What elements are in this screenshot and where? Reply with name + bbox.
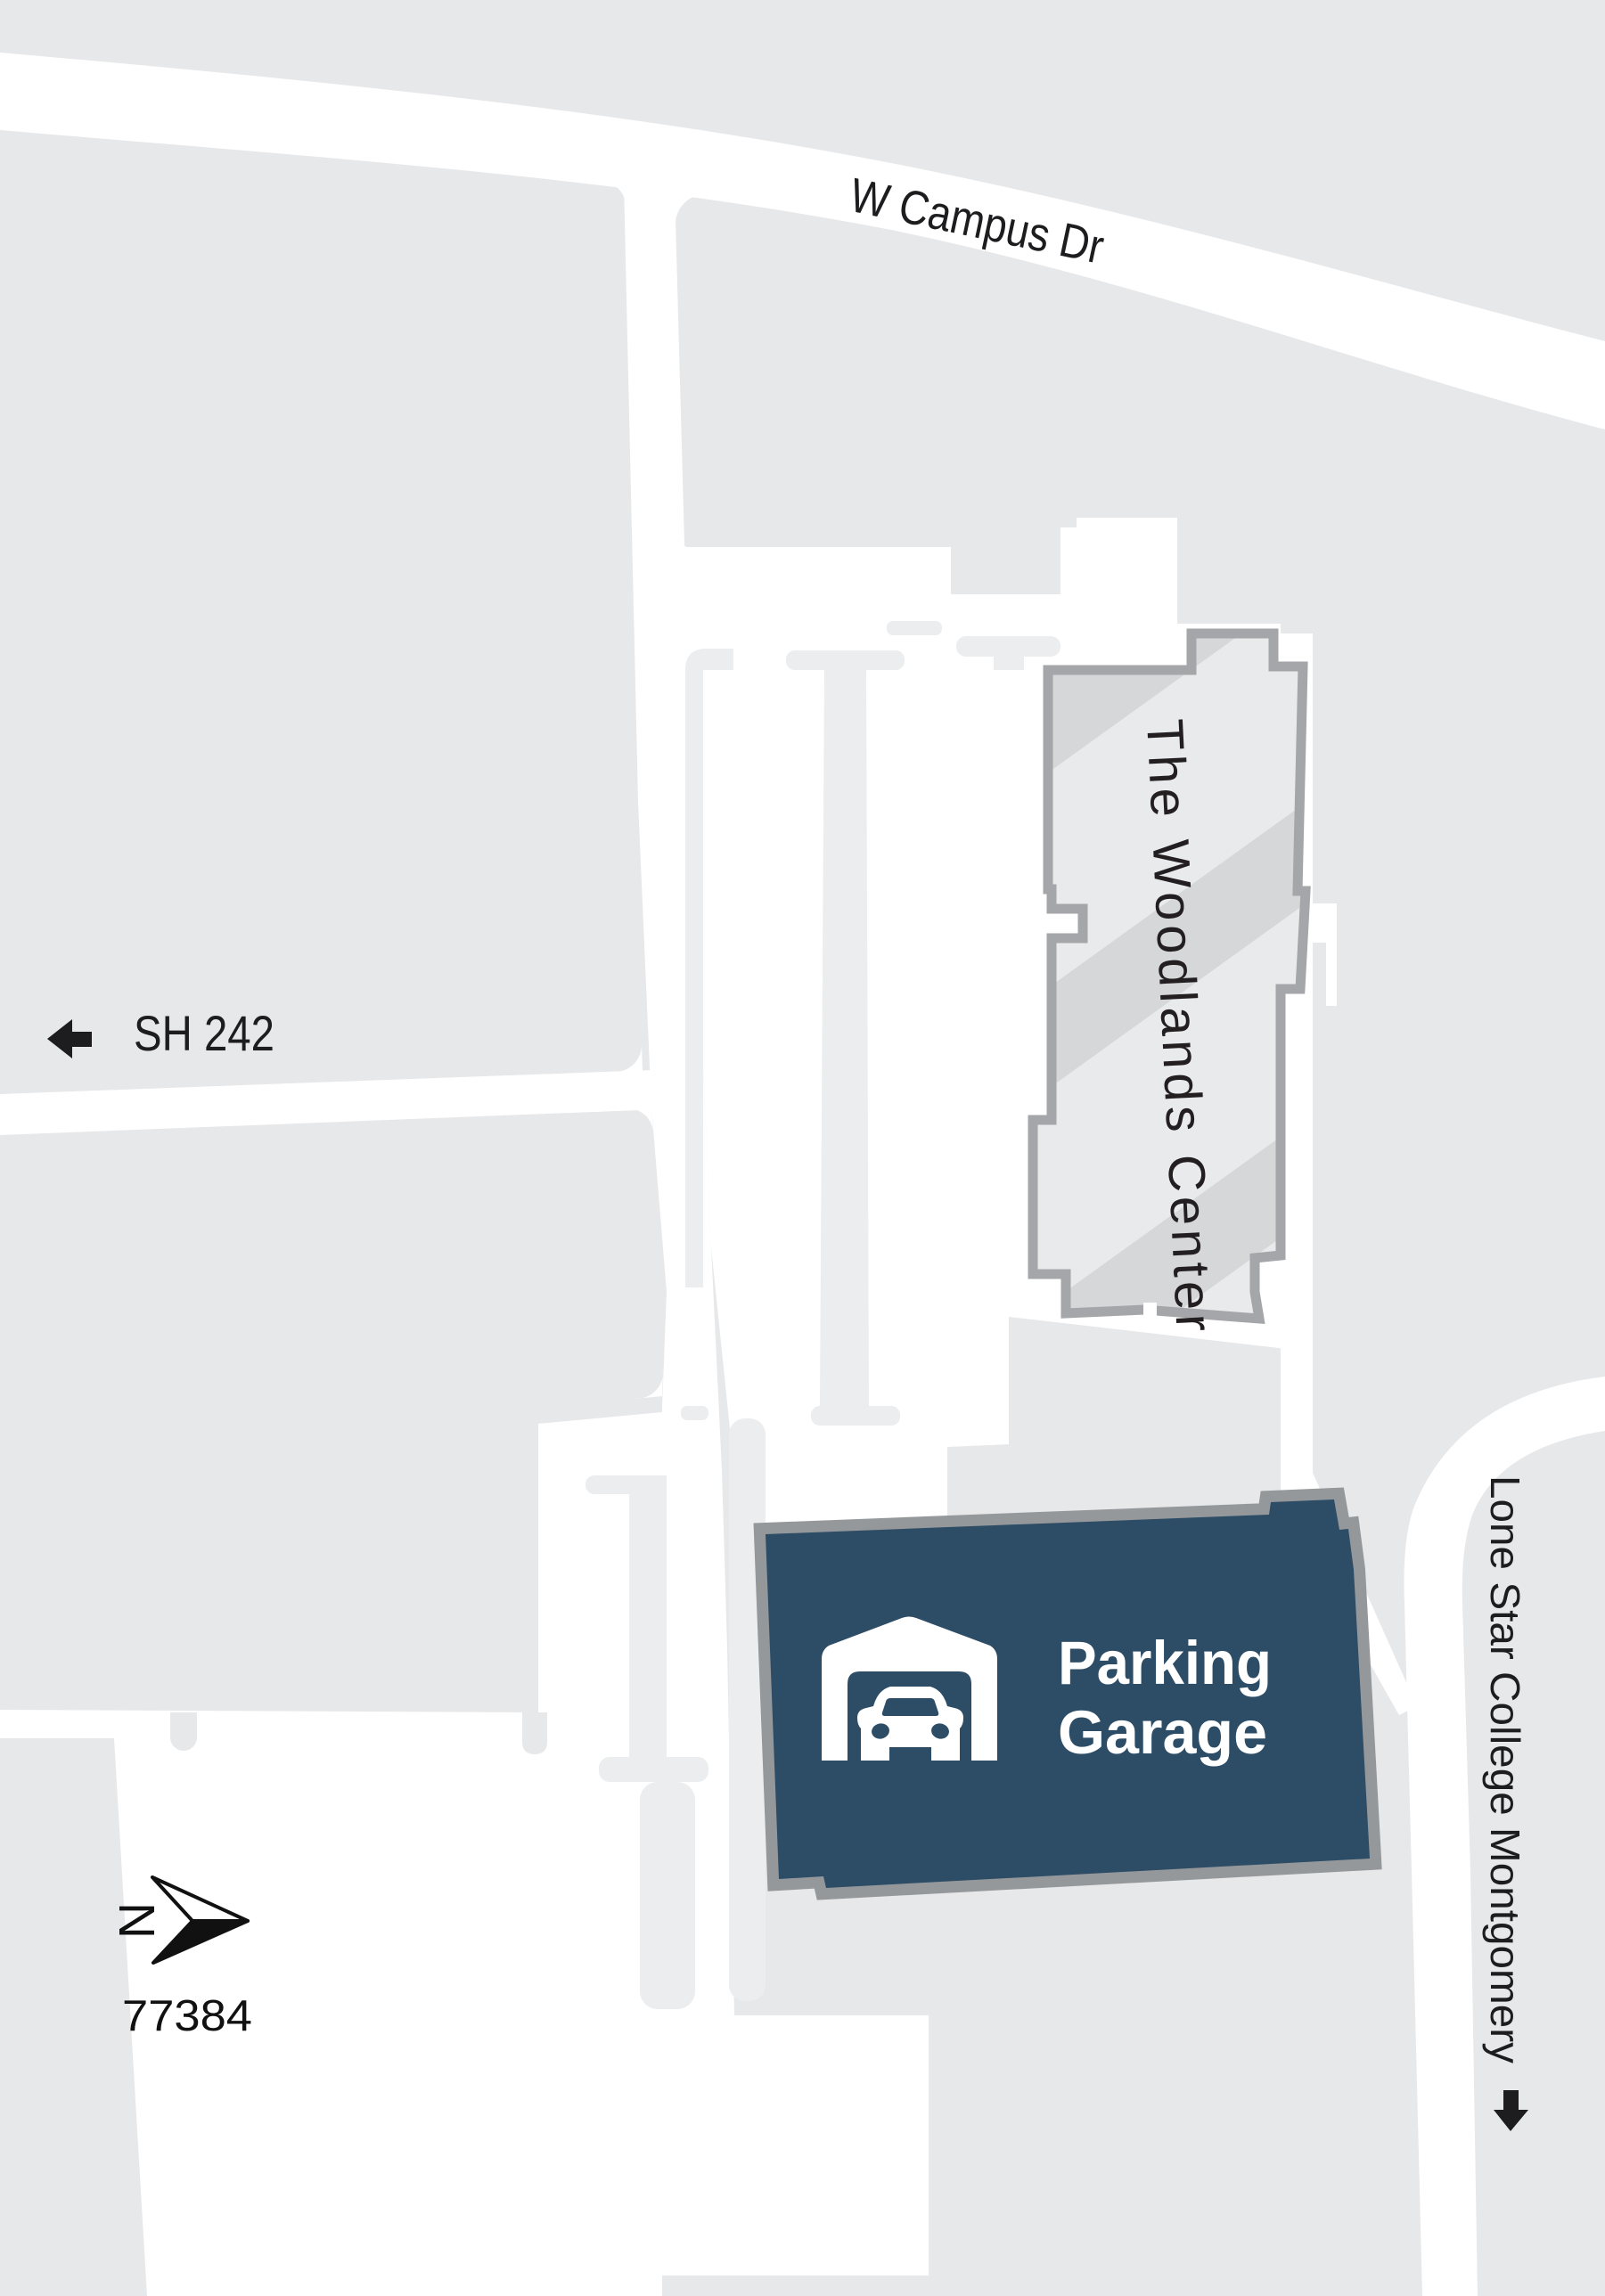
svg-text:Parking: Parking — [1058, 1629, 1272, 1697]
svg-text:77384: 77384 — [122, 1992, 252, 2040]
svg-text:N: N — [108, 1902, 165, 1939]
svg-text:SH 242: SH 242 — [134, 1005, 274, 1061]
svg-text:Lone Star College Montgomery: Lone Star College Montgomery — [1482, 1475, 1528, 2063]
svg-text:Garage: Garage — [1058, 1698, 1267, 1767]
